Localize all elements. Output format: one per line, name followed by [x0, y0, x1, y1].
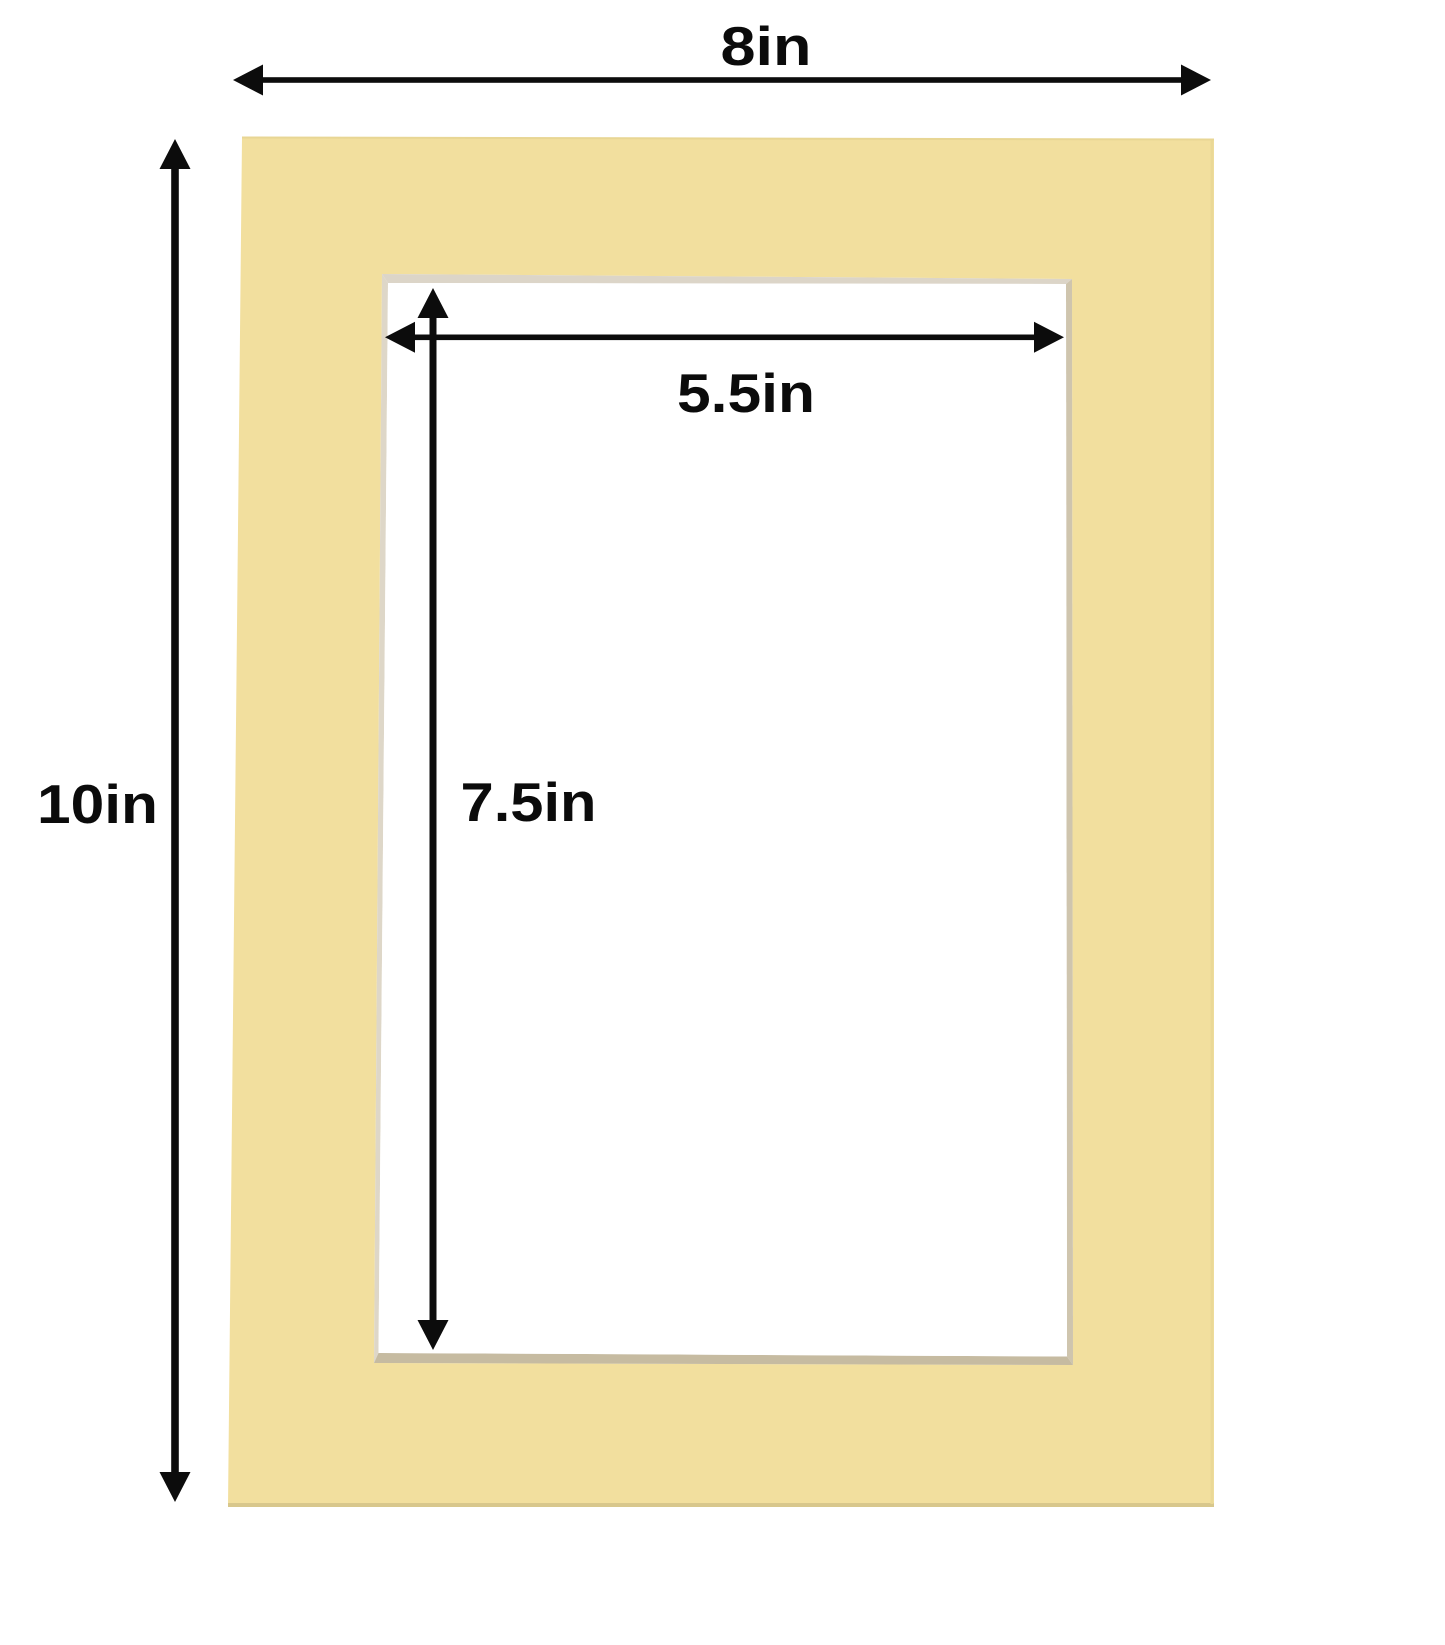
- svg-text:7.5in: 7.5in: [461, 771, 597, 833]
- svg-text:5.5in: 5.5in: [677, 362, 815, 424]
- svg-text:10in: 10in: [37, 773, 158, 835]
- svg-text:8in: 8in: [721, 15, 812, 77]
